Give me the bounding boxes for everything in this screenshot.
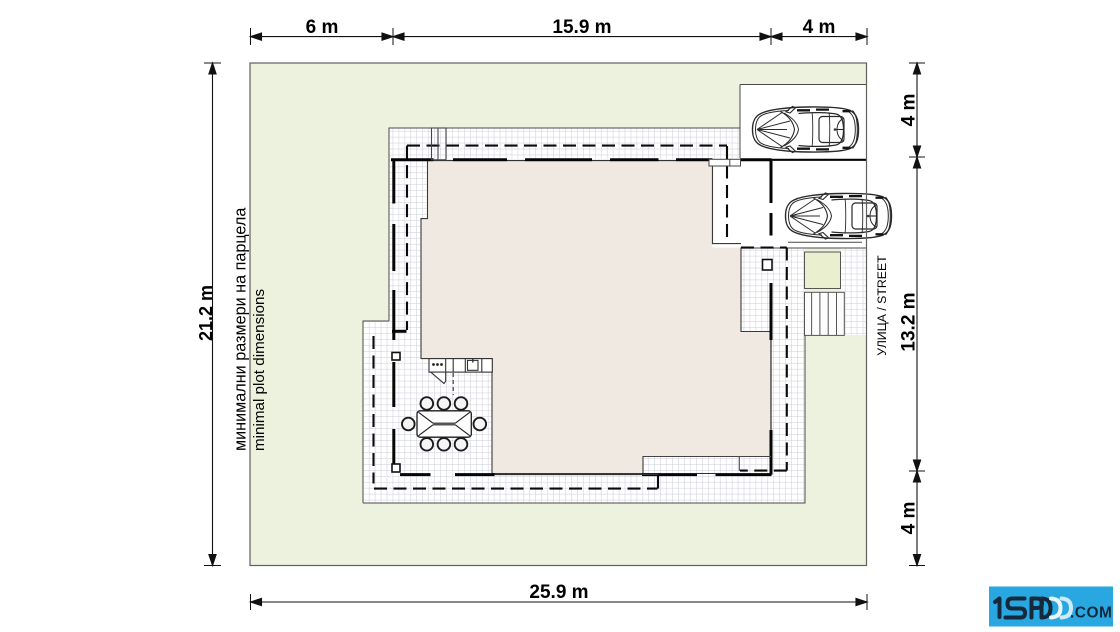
svg-text:15.9 m: 15.9 m	[552, 17, 611, 38]
svg-text:25.9 m: 25.9 m	[529, 582, 588, 603]
svg-text:минимални размери на парцела: минимални размери на парцела	[232, 208, 250, 451]
svg-text:УЛИЦА / STREET: УЛИЦА / STREET	[875, 255, 889, 356]
svg-text:6 m: 6 m	[306, 17, 339, 38]
svg-text:minimal plot dimensions: minimal plot dimensions	[251, 289, 268, 451]
svg-text:4 m: 4 m	[803, 17, 836, 38]
svg-text:13.2 m: 13.2 m	[899, 292, 920, 351]
svg-text:4 m: 4 m	[899, 94, 920, 127]
svg-text:.COM: .COM	[1070, 605, 1112, 622]
svg-text:4 m: 4 m	[899, 502, 920, 535]
svg-text:21.2 m: 21.2 m	[196, 285, 216, 341]
